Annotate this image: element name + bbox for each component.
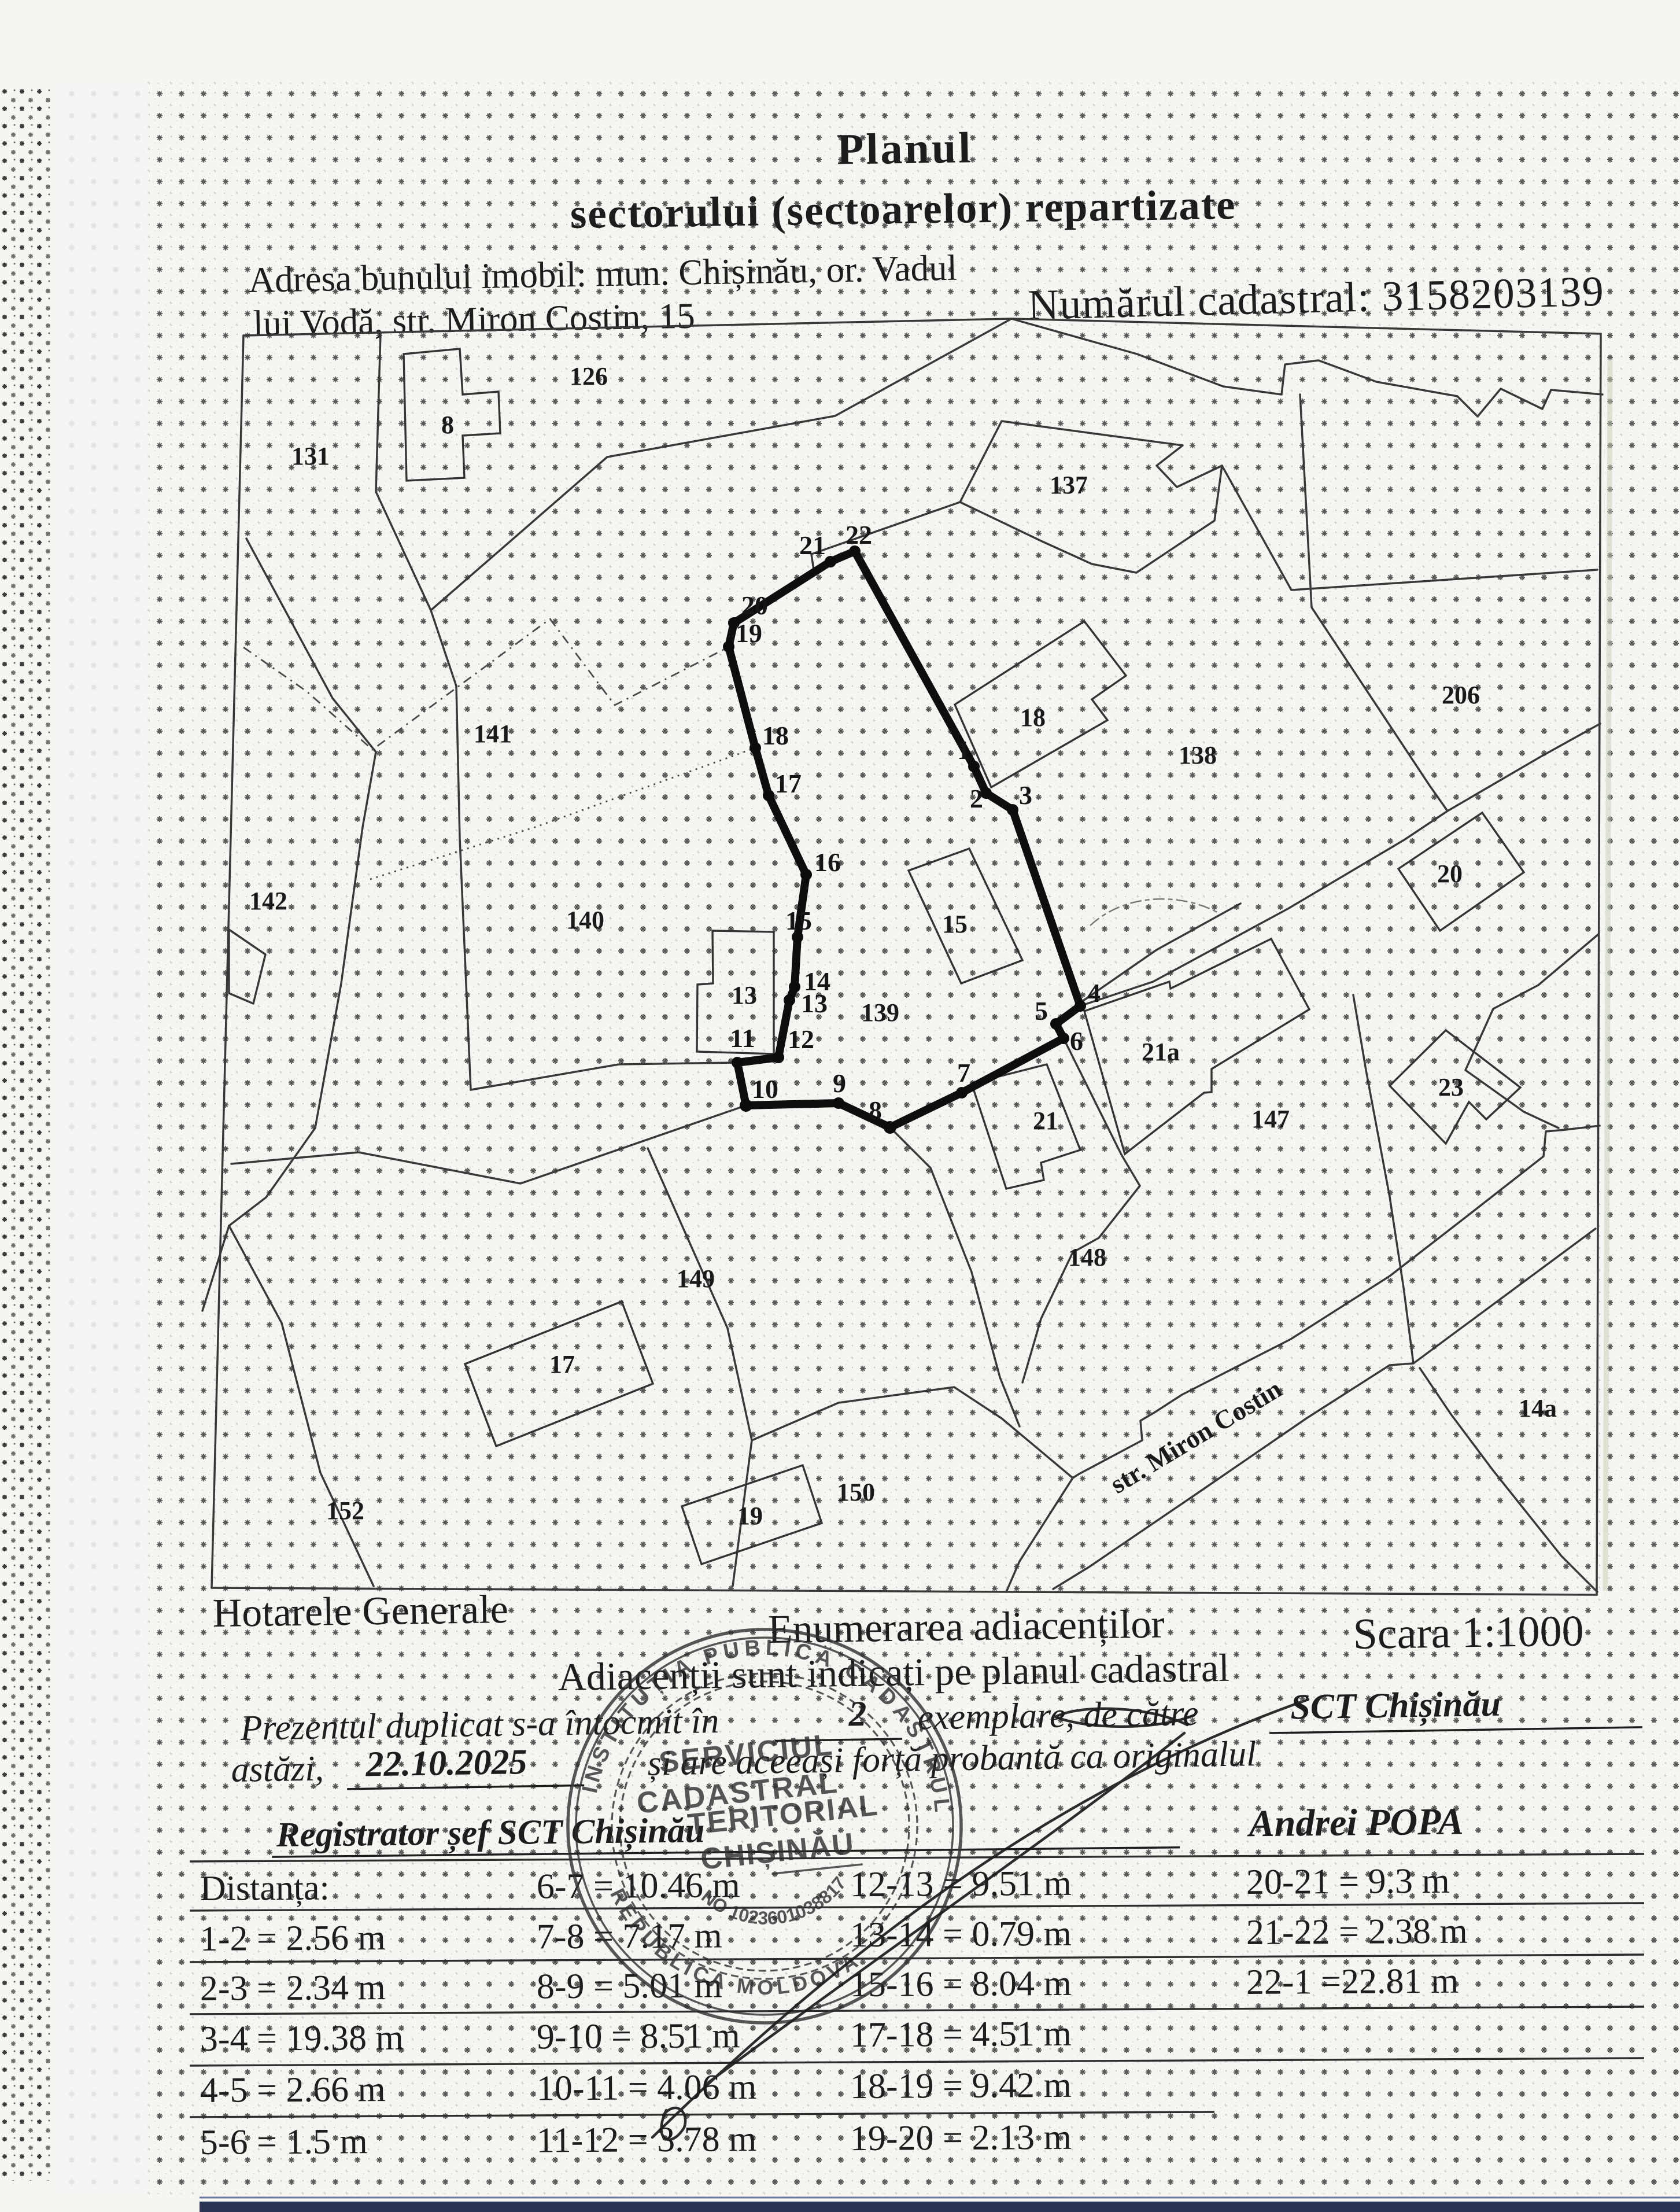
svg-text:126: 126 [570,362,608,390]
svg-text:206: 206 [1442,681,1480,709]
svg-text:148: 148 [1068,1243,1106,1271]
svg-text:19-20 = 2.13 m: 19-20 = 2.13 m [850,2118,1072,2158]
svg-text:4: 4 [1087,978,1101,1008]
svg-text:2: 2 [970,784,983,813]
svg-text:1: 1 [957,735,970,765]
svg-text:14a: 14a [1519,1394,1557,1422]
svg-text:SCT Chișinău: SCT Chișinău [1290,1684,1501,1728]
svg-text:140: 140 [566,906,604,934]
svg-text:5: 5 [1035,996,1048,1026]
svg-text:20-21 = 9.3 m: 20-21 = 9.3 m [1246,1861,1450,1902]
svg-text:6: 6 [1070,1026,1083,1056]
svg-text:16: 16 [814,847,841,877]
svg-text:18: 18 [762,721,789,750]
svg-text:4-5 = 2.66 m: 4-5 = 2.66 m [200,2070,386,2110]
svg-text:152: 152 [326,1496,364,1525]
svg-text:Planul: Planul [836,123,973,174]
svg-text:15: 15 [785,906,812,935]
svg-text:2-3 = 2.34 m: 2-3 = 2.34 m [200,1968,386,2008]
svg-text:10: 10 [752,1074,778,1104]
svg-text:9: 9 [833,1068,846,1098]
svg-text:10-11 = 4.06 m: 10-11 = 4.06 m [537,2067,757,2108]
svg-text:137: 137 [1050,471,1088,499]
svg-text:13: 13 [732,981,757,1009]
svg-text:9-10 = 8.51 m: 9-10 = 8.51 m [537,2016,740,2056]
svg-text:17: 17 [549,1350,575,1378]
svg-text:22-1 =22.81 m: 22-1 =22.81 m [1246,1962,1459,2002]
svg-text:3: 3 [1019,780,1032,810]
svg-text:139: 139 [861,998,899,1027]
svg-text:149: 149 [677,1264,715,1293]
svg-text:Scara 1:1000: Scara 1:1000 [1353,1606,1584,1658]
svg-text:21-22 = 2.38 m: 21-22 = 2.38 m [1246,1912,1468,1952]
svg-text:141: 141 [474,720,512,748]
svg-text:5-6 = 1.5 m: 5-6 = 1.5 m [200,2122,368,2162]
svg-text:17: 17 [775,769,802,798]
svg-text:142: 142 [249,887,287,915]
svg-text:7: 7 [957,1058,970,1087]
svg-text:19: 19 [737,1502,763,1530]
svg-text:Hotarele Generale: Hotarele Generale [212,1587,508,1636]
svg-text:11: 11 [730,1023,755,1053]
svg-text:12: 12 [788,1024,814,1054]
svg-text:8: 8 [441,411,454,439]
svg-text:20: 20 [1437,860,1463,888]
svg-text:17-18 = 4.51 m: 17-18 = 4.51 m [850,2014,1072,2055]
svg-text:15: 15 [942,910,968,938]
svg-text:Distanța:: Distanța: [200,1868,330,1908]
svg-text:1-2 = 2.56 m: 1-2 = 2.56 m [200,1918,386,1959]
svg-text:150: 150 [837,1478,875,1506]
svg-text:18-19 = 9.42 m: 18-19 = 9.42 m [850,2066,1072,2106]
svg-text:21: 21 [1033,1107,1058,1135]
svg-text:131: 131 [291,442,330,470]
svg-text:3-4 = 19.38 m: 3-4 = 19.38 m [200,2018,404,2059]
svg-text:8: 8 [869,1096,882,1125]
svg-text:11-12 = 3.78 m: 11-12 = 3.78 m [537,2119,757,2160]
svg-text:19: 19 [736,618,762,648]
svg-text:18: 18 [1020,703,1046,732]
svg-text:23: 23 [1438,1073,1464,1101]
svg-text:astăzi,: astăzi, [231,1749,324,1790]
svg-text:Andrei POPA: Andrei POPA [1246,1801,1464,1845]
svg-text:Enumerarea adiacenților: Enumerarea adiacenților [767,1602,1165,1652]
svg-text:lui Vodă, str. Miron Costin, 1: lui Vodă, str. Miron Costin, 15 [253,296,695,344]
svg-text:20: 20 [741,591,768,620]
svg-text:14: 14 [804,967,830,996]
svg-text:22: 22 [845,520,872,550]
svg-text:21a: 21a [1142,1038,1180,1066]
svg-text:147: 147 [1251,1105,1290,1133]
svg-text:138: 138 [1179,741,1217,769]
svg-text:22.10.2025: 22.10.2025 [365,1742,527,1784]
svg-text:21: 21 [799,530,826,560]
svg-text:sectorului (sectoarelor) repar: sectorului (sectoarelor) repartizate [570,181,1236,237]
